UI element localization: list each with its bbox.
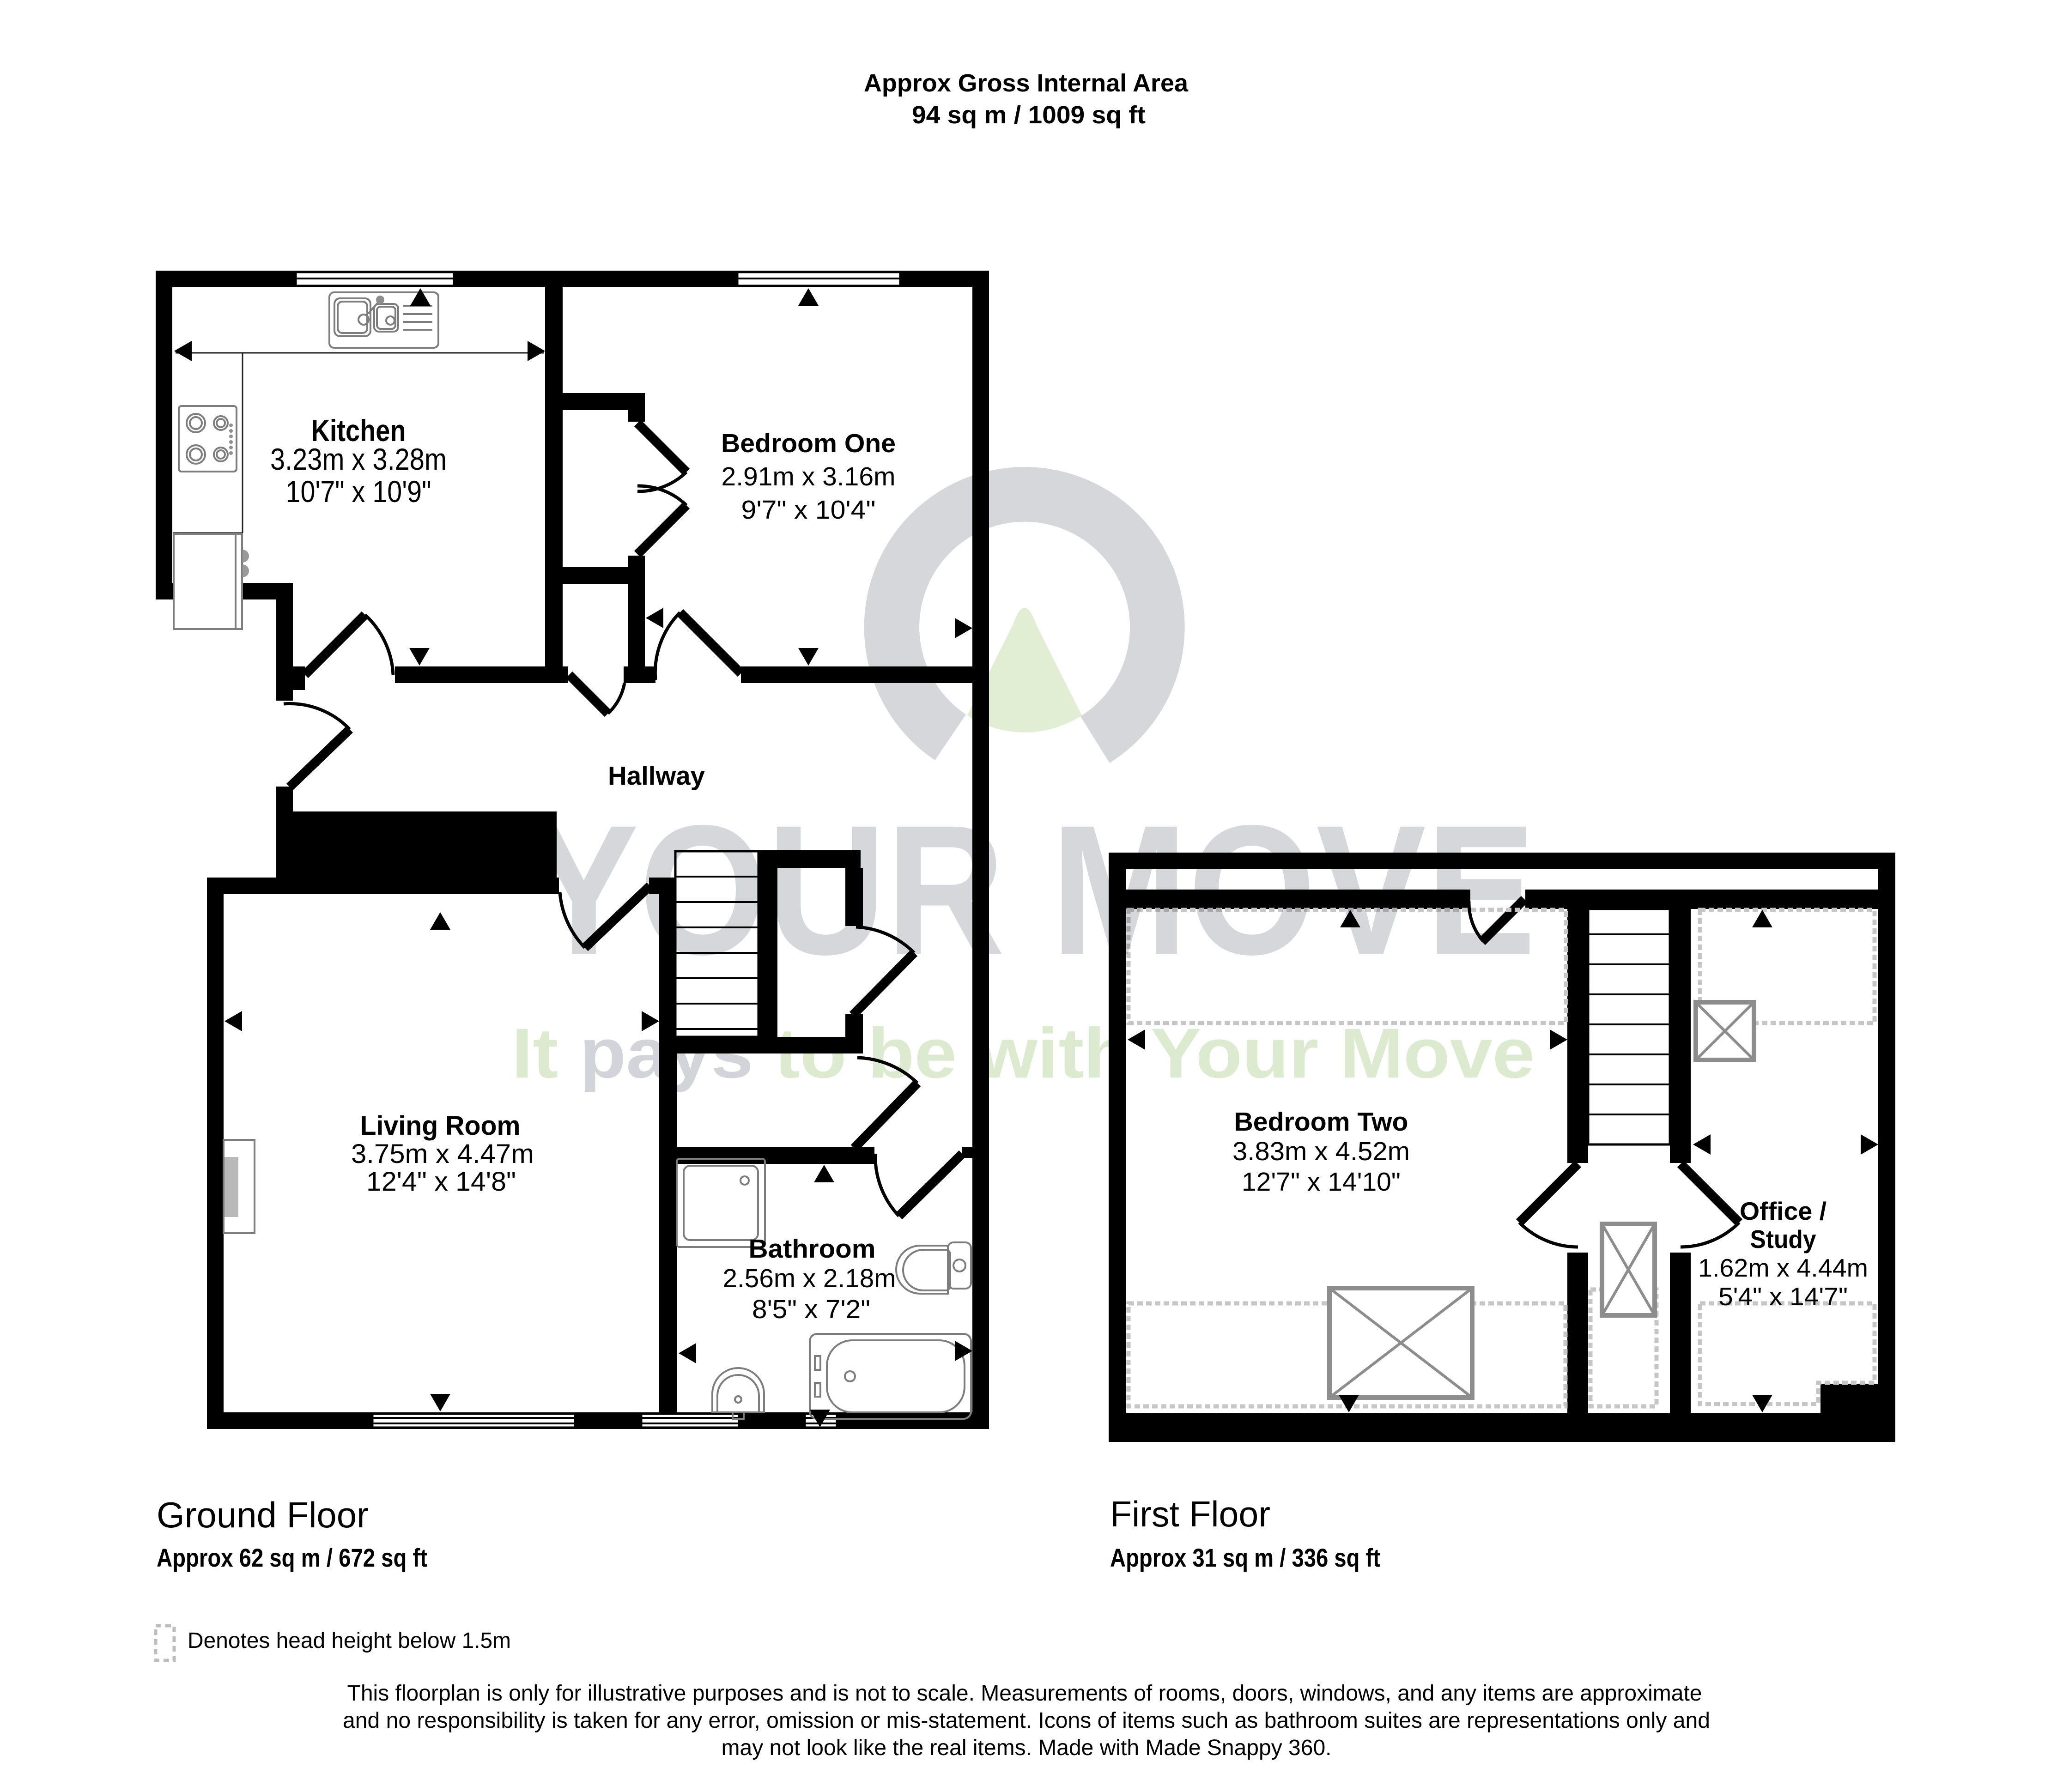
svg-text:This floorplan is only for ill: This floorplan is only for illustrative … (347, 1681, 1702, 1706)
svg-text:Ground Floor: Ground Floor (157, 1495, 369, 1535)
svg-text:Approx 62 sq m / 672 sq ft: Approx 62 sq m / 672 sq ft (157, 1543, 427, 1572)
svg-text:Bedroom Two: Bedroom Two (1234, 1107, 1408, 1137)
svg-text:12'4" x 14'8": 12'4" x 14'8" (366, 1167, 516, 1197)
svg-text:Approx Gross Internal Area: Approx Gross Internal Area (864, 69, 1189, 97)
svg-text:Office /: Office / (1740, 1197, 1826, 1225)
svg-text:and no responsibility is taken: and no responsibility is taken for any e… (343, 1708, 1710, 1733)
svg-text:8'5" x 7'2": 8'5" x 7'2" (752, 1295, 870, 1324)
svg-text:YOUR MOVE: YOUR MOVE (529, 787, 1536, 993)
svg-text:94 sq m / 1009 sq ft: 94 sq m / 1009 sq ft (912, 101, 1146, 129)
svg-text:It pays to be with Your Move: It pays to be with Your Move (512, 1014, 1535, 1093)
svg-text:3.75m x 4.47m: 3.75m x 4.47m (351, 1139, 534, 1169)
svg-text:1.62m x 4.44m: 1.62m x 4.44m (1698, 1253, 1868, 1282)
svg-text:Bathroom: Bathroom (749, 1234, 876, 1264)
svg-text:3.83m x 4.52m: 3.83m x 4.52m (1232, 1137, 1410, 1166)
svg-text:2.56m x 2.18m: 2.56m x 2.18m (723, 1264, 896, 1293)
svg-text:Denotes head height below 1.5m: Denotes head height below 1.5m (188, 1629, 511, 1653)
svg-text:12'7" x 14'10": 12'7" x 14'10" (1242, 1167, 1401, 1197)
svg-text:Bedroom One: Bedroom One (721, 429, 896, 458)
svg-text:Study: Study (1750, 1225, 1816, 1253)
svg-text:Approx 31 sq m / 336 sq ft: Approx 31 sq m / 336 sq ft (1110, 1543, 1380, 1572)
svg-text:3.23m x 3.28m: 3.23m x 3.28m (270, 442, 447, 476)
svg-text:Living Room: Living Room (360, 1111, 521, 1141)
svg-text:may not look like the real ite: may not look like the real items. Made w… (722, 1736, 1332, 1760)
svg-text:2.91m x 3.16m: 2.91m x 3.16m (722, 462, 896, 491)
svg-text:9'7" x 10'4": 9'7" x 10'4" (741, 495, 876, 525)
svg-text:5'4" x 14'7": 5'4" x 14'7" (1718, 1282, 1848, 1311)
svg-text:10'7" x 10'9": 10'7" x 10'9" (286, 474, 431, 509)
svg-text:First Floor: First Floor (1110, 1494, 1270, 1534)
